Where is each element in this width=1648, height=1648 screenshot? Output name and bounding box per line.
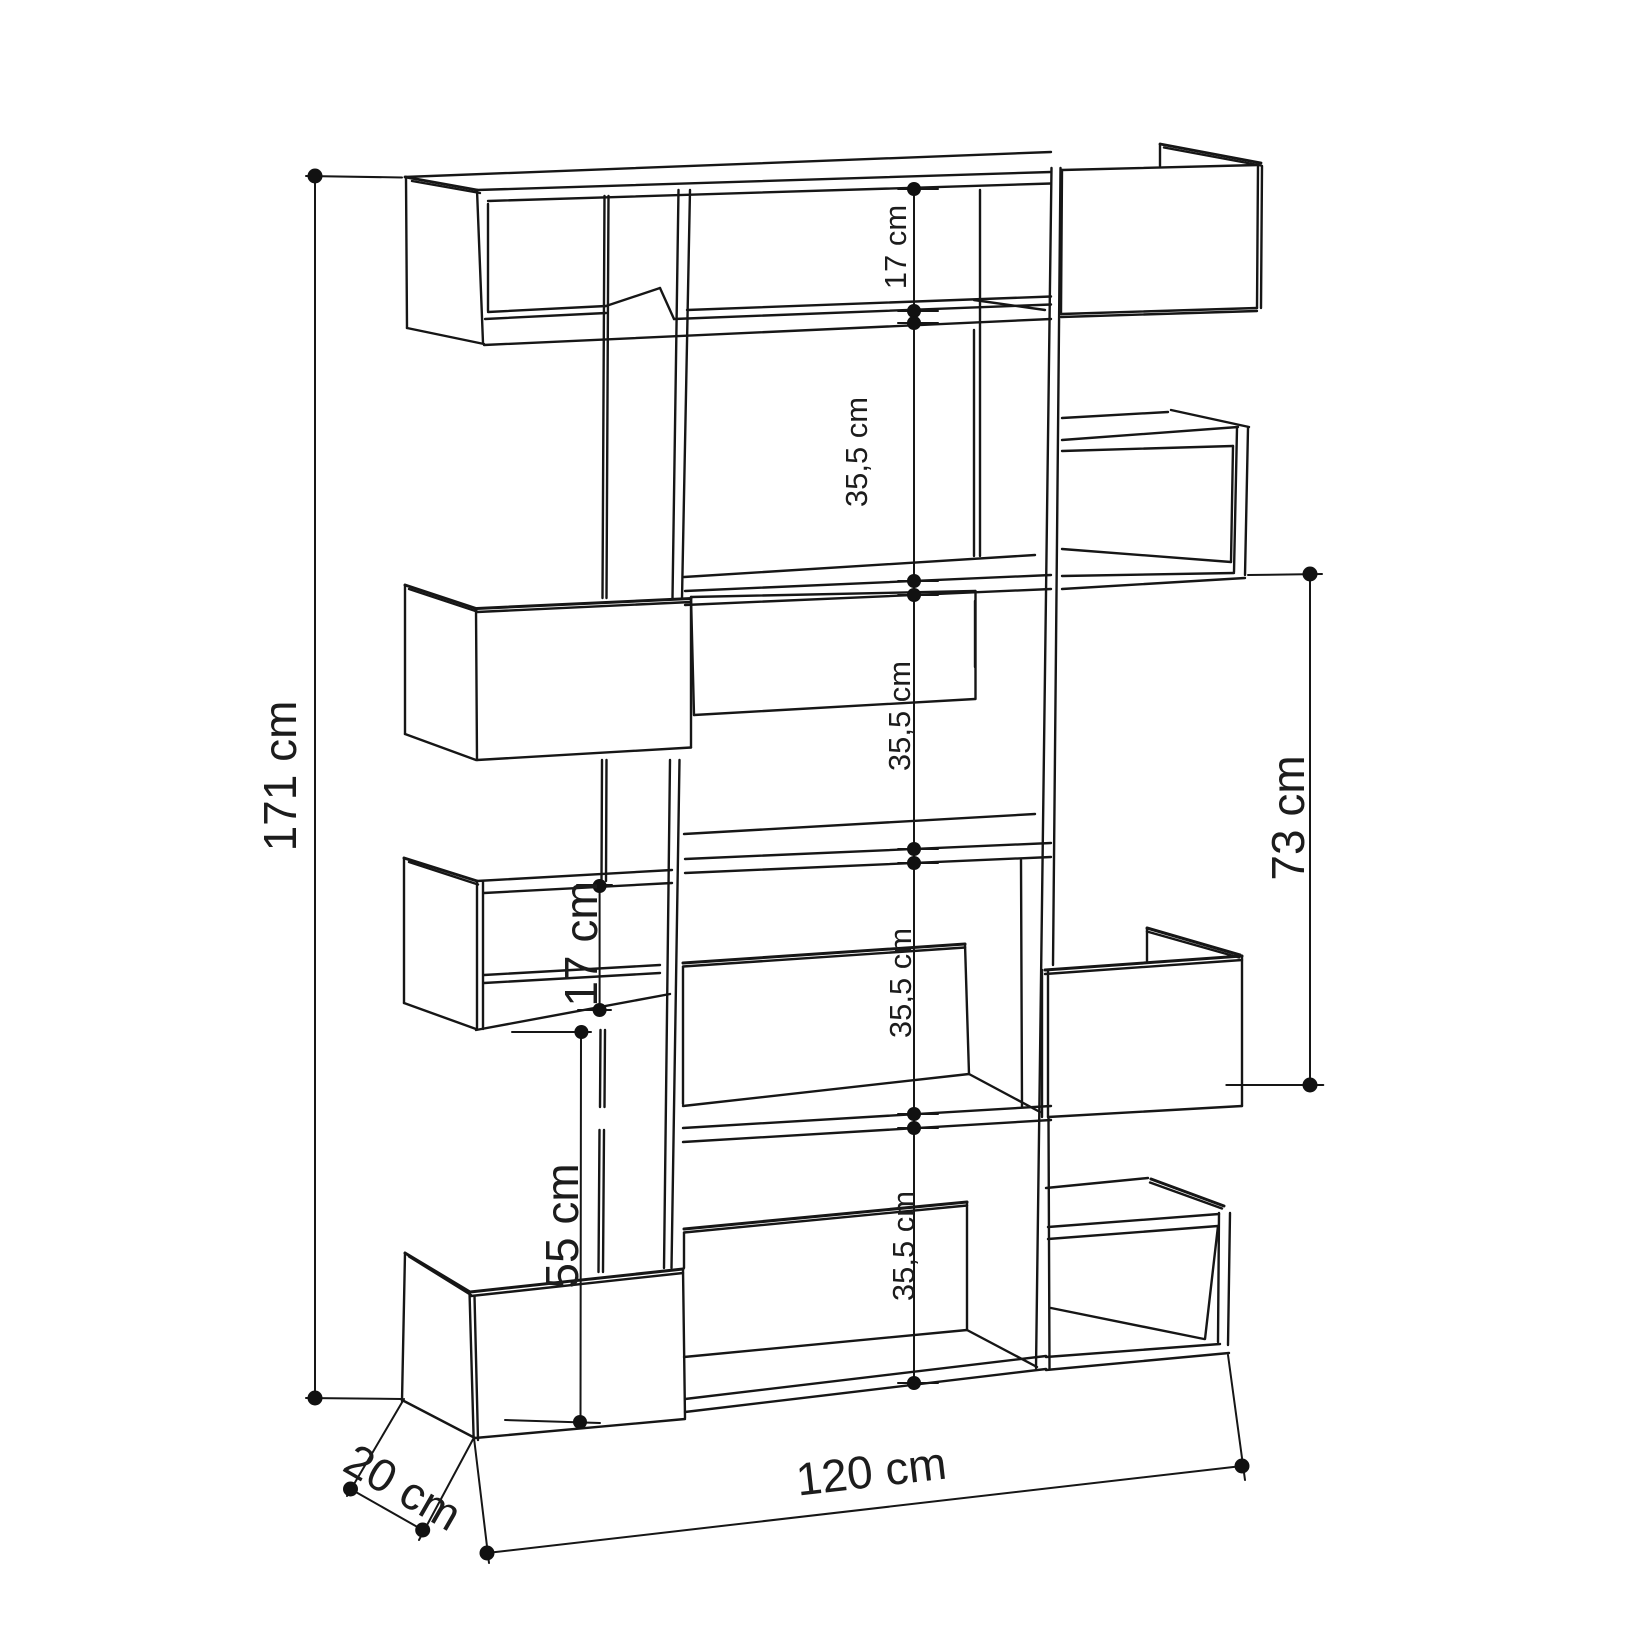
svg-text:171 cm: 171 cm <box>254 701 306 852</box>
svg-text:35,5 cm: 35,5 cm <box>883 928 918 1038</box>
svg-text:35,5 cm: 35,5 cm <box>882 661 917 771</box>
svg-text:35,5 cm: 35,5 cm <box>886 1191 921 1301</box>
svg-text:35,5 cm: 35,5 cm <box>839 397 874 507</box>
svg-text:17 cm: 17 cm <box>555 881 607 1006</box>
svg-text:17 cm: 17 cm <box>878 205 913 289</box>
svg-text:55 cm: 55 cm <box>536 1163 588 1288</box>
svg-text:73 cm: 73 cm <box>1262 755 1314 880</box>
